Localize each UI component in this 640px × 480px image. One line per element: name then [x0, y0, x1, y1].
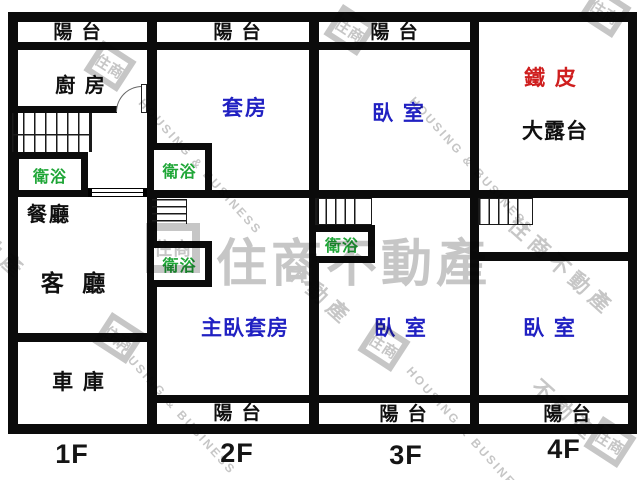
wall-kitchen-bottom: [8, 106, 117, 113]
wall-top: [8, 12, 637, 22]
room-label-bath-2f-lower: 衛浴: [162, 252, 196, 276]
wall-balcony-top: [8, 42, 479, 50]
bath-box-3f: 衛浴: [309, 225, 375, 263]
room-label-bedroom-3f-front: 臥 室: [372, 103, 426, 124]
room-label-kitchen: 廚 房: [55, 76, 107, 96]
room-label-suite-2f: 套房: [222, 98, 268, 119]
room-label-metal-roof-4f: 鐵 皮: [524, 68, 578, 89]
watermark-cjk-center: 不動產: [280, 256, 360, 332]
room-label-master-suite-2f: 主臥套房: [201, 318, 289, 339]
wall-balcony-bottom: [147, 395, 637, 403]
stairs-4f: [478, 198, 533, 225]
room-label-terrace-4f: 大露台: [522, 121, 588, 142]
balcony-label-2f-bottom: 陽 台: [213, 404, 262, 423]
room-label-dining: 餐廳: [27, 205, 71, 225]
balcony-label-1f-top: 陽 台: [53, 23, 102, 42]
bath-box-2f-lower: 衛浴: [147, 241, 212, 287]
wall-middle: [147, 190, 637, 198]
room-label-bedroom-3f-rear: 臥 室: [374, 318, 428, 339]
stairs-3f: [315, 198, 372, 225]
room-label-bedroom-4f: 臥 室: [523, 318, 577, 339]
room-label-garage: 車 庫: [52, 372, 106, 393]
balcony-label-4f-bottom: 陽 台: [543, 405, 592, 424]
floor-label-3f: 3F: [389, 442, 423, 469]
wall-left: [8, 12, 18, 434]
dining-window: [88, 188, 147, 197]
wall-bottom: [8, 424, 637, 434]
room-label-bath-3f: 衛浴: [325, 232, 359, 256]
floor-plan: 衛浴 衛浴 衛浴 衛浴 陽 台 陽 台 陽 台 廚 房 餐廳 客 廳 車 庫 套…: [0, 0, 640, 480]
bath-box-2f-upper: 衛浴: [147, 143, 212, 197]
wall-4f-room-top: [470, 252, 637, 261]
kitchen-door-arc: [116, 86, 142, 112]
floor-label-4f: 4F: [547, 436, 581, 463]
floor-label-2f: 2F: [220, 440, 254, 467]
room-label-bath-2f-upper: 衛浴: [162, 158, 196, 182]
wall-living-garage: [8, 333, 156, 342]
room-label-living: 客 廳: [41, 272, 111, 295]
watermark-cjk-right: 住商不動產: [502, 210, 622, 323]
balcony-label-3f-bottom: 陽 台: [379, 405, 428, 424]
stairs-2f: [152, 199, 187, 224]
wall-right: [628, 12, 637, 434]
stairs-1f: [12, 113, 92, 152]
floor-label-1f: 1F: [55, 441, 89, 468]
balcony-label-3f-top: 陽 台: [370, 23, 419, 42]
room-label-bath-1f: 衛浴: [33, 163, 67, 187]
bath-box-1f: 衛浴: [12, 152, 88, 197]
kitchen-door-leaf: [141, 84, 147, 113]
balcony-label-2f-top: 陽 台: [213, 23, 262, 42]
